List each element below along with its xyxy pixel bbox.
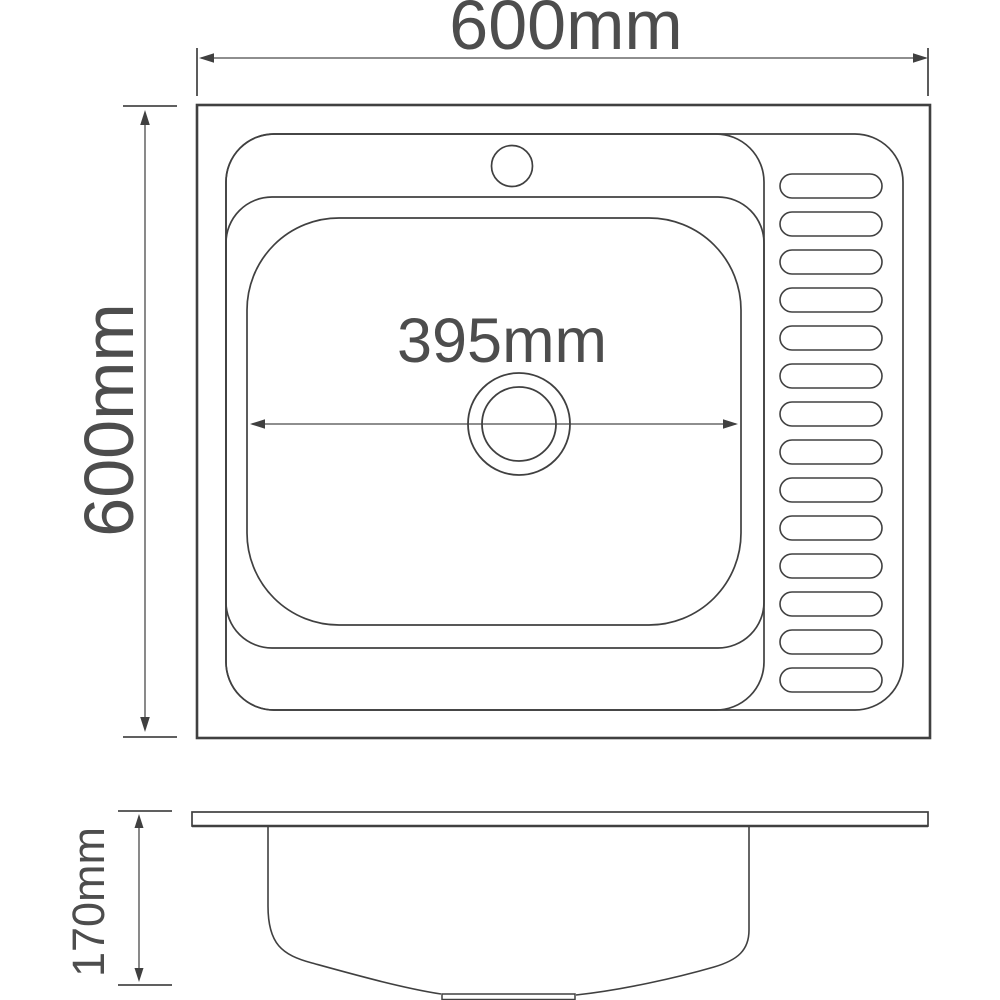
bowl-width-dimension: 395mm [250,306,738,429]
top-width-dimension: 600mm [197,0,928,96]
drainboard-rib [780,592,882,616]
drainboard-rib [780,364,882,388]
side-depth-arrow-up-icon [135,814,144,828]
left-height-arrow-up-icon [140,110,150,125]
drain-fitting [442,994,575,1000]
drainboard-rib [780,668,882,692]
side-view [192,812,928,1000]
left-height-arrow-down-icon [140,717,150,732]
top-width-label: 600mm [449,0,682,64]
faucet-hole [492,146,533,187]
drainboard-rib [780,212,882,236]
sink-dimension-drawing: 600mm 600mm [0,0,1000,1000]
countertop-slab [192,812,928,826]
drainboard-rib [780,554,882,578]
bowl-width-label: 395mm [397,306,607,376]
sink-outline [197,105,930,738]
drainboard-rib [780,326,882,350]
side-depth-label: 170mm [63,827,114,977]
drainboard-rib [780,440,882,464]
drawing-svg: 600mm 600mm [0,0,1000,1000]
drainboard-rib [780,288,882,312]
bowl-width-arrow-left-icon [250,419,265,429]
top-width-arrow-right-icon [913,53,928,63]
drainboard-ribs [780,174,882,692]
drainboard-rib [780,516,882,540]
top-width-arrow-left-icon [199,53,214,63]
inner-rim-outline [226,197,764,648]
bowl-section-outline [226,134,764,710]
drainboard-rib [780,174,882,198]
bowl-width-arrow-right-icon [723,419,738,429]
left-height-label: 600mm [70,303,148,536]
basin-outline [247,218,741,625]
top-view: 395mm [197,105,930,738]
drainboard-rib [780,402,882,426]
drainboard-rib [780,250,882,274]
left-height-dimension: 600mm [70,106,177,737]
bowl-profile-left [268,827,441,994]
drainboard-rib [780,630,882,654]
drainboard-rib [780,478,882,502]
side-depth-arrow-down-icon [135,968,144,982]
bowl-profile-right [576,827,749,995]
side-depth-dimension: 170mm [63,811,172,985]
